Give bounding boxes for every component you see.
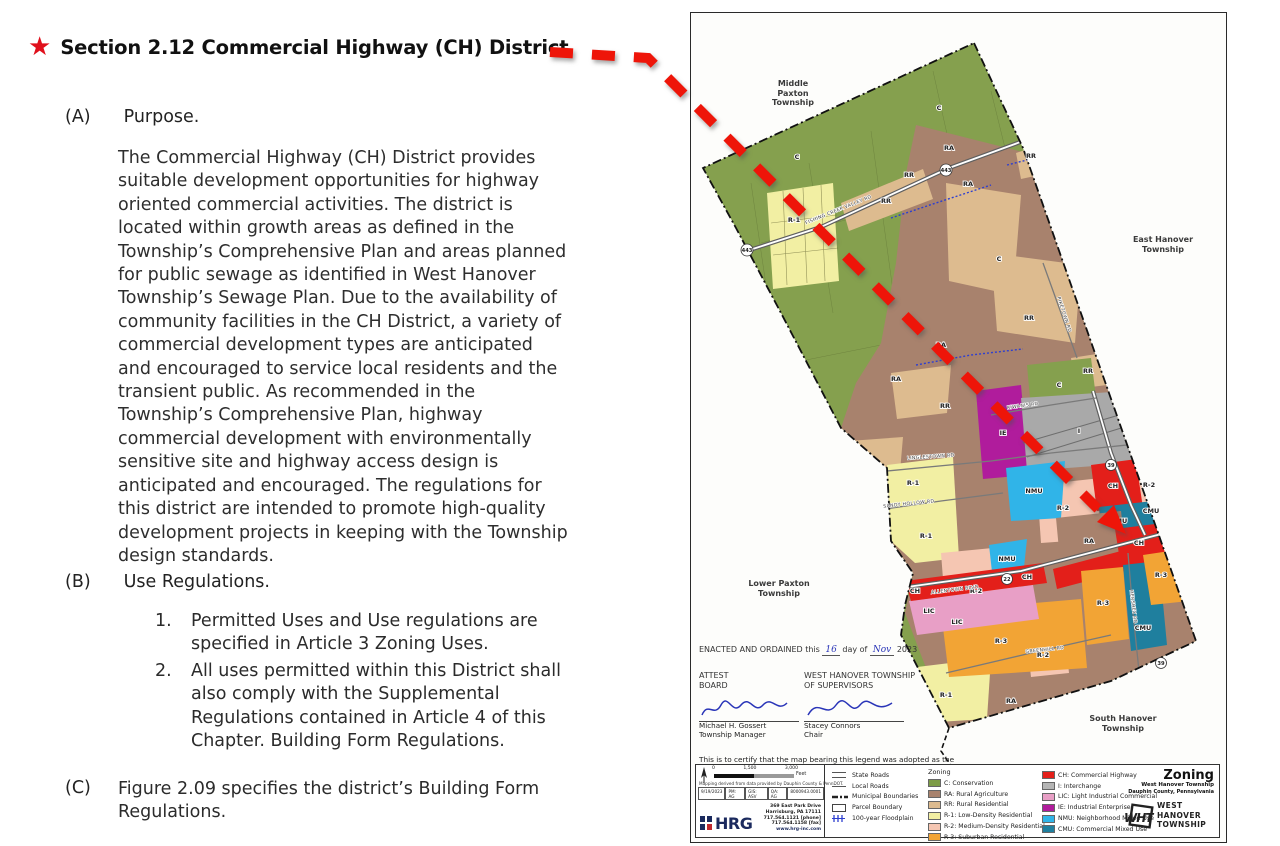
svg-text:I: I — [1078, 427, 1080, 435]
svg-text:RA: RA — [944, 144, 954, 152]
neighbor-label-middle-paxton: MiddlePaxtonTownship — [733, 79, 853, 108]
svg-text:R-2: R-2 — [1143, 481, 1155, 489]
map-title-block: Zoning West Hanover Township Dauphin Cou… — [1128, 769, 1214, 795]
revision-stamp-row: 9/19/2023PM: AG GIS: ASVQA: AG 8000943.0… — [698, 787, 824, 800]
legend-zoning-left: Zoning C: Conservation RA: Rural Agricul… — [928, 768, 1045, 843]
hrg-logo-icon — [700, 816, 713, 831]
svg-text:IE: IE — [1000, 429, 1007, 437]
list-item-number: 1. — [155, 610, 191, 657]
svg-text:LIC: LIC — [951, 618, 963, 626]
local-roads-symbol — [832, 786, 846, 787]
svg-text:RA: RA — [936, 341, 946, 349]
zone-swatch — [928, 812, 941, 820]
svg-text:C: C — [795, 153, 800, 161]
svg-text:RR: RR — [940, 402, 950, 410]
zone-swatch — [1042, 825, 1055, 833]
signature-squiggle — [804, 695, 896, 721]
svg-text:RR: RR — [1083, 367, 1093, 375]
attest-block: ATTESTBOARD — [699, 671, 729, 690]
svg-text:CH: CH — [1022, 573, 1032, 581]
svg-text:R-3: R-3 — [1097, 599, 1109, 607]
clause-c-text: Figure 2.09 specifies the district’s Bui… — [118, 778, 618, 825]
map-sheet: C C C C RA RA RA RA RA RA RR RR RR RR RR… — [690, 12, 1227, 843]
svg-text:CH: CH — [1108, 482, 1118, 490]
svg-text:RA: RA — [1006, 697, 1016, 705]
list-item: 2. All uses permitted within this Distri… — [155, 660, 591, 754]
zone-swatch — [1042, 782, 1055, 790]
clause-b: (B) Use Regulations. — [65, 572, 270, 592]
svg-text:RR: RR — [904, 171, 914, 179]
mapping-credit: Mapping derived from data provided by Da… — [699, 781, 843, 786]
svg-text:CMU: CMU — [1111, 517, 1128, 525]
svg-text:RA: RA — [1084, 537, 1094, 545]
clause-a: (A) Purpose. — [65, 107, 199, 127]
svg-text:R-3: R-3 — [995, 637, 1007, 645]
handwritten-day: 16 — [822, 645, 839, 656]
scale-ticks: 01,5003,000 — [712, 766, 798, 771]
svg-text:443: 443 — [742, 248, 753, 254]
svg-text:RA: RA — [891, 375, 901, 383]
list-item-text: Permitted Uses and Use regulations are s… — [191, 610, 591, 657]
svg-text:C: C — [997, 255, 1002, 263]
enacted-line: ENACTED AND ORDAINED this 16 day of Nov … — [699, 645, 917, 655]
wht-township-logo: WHT WEST HANOVER TOWNSHIP — [1124, 801, 1214, 835]
zone-swatch — [928, 823, 941, 831]
supervisors-block: WEST HANOVER TOWNSHIPOF SUPERVISORS — [804, 671, 915, 690]
svg-text:39: 39 — [1107, 463, 1115, 469]
svg-text:R-2: R-2 — [1057, 504, 1069, 512]
zone-swatch — [928, 790, 941, 798]
list-item: 1. Permitted Uses and Use regulations ar… — [155, 610, 591, 657]
clause-c: (C) — [65, 778, 118, 798]
parcel-boundary-symbol — [832, 804, 846, 812]
zone-swatch — [1042, 804, 1055, 812]
zone-swatch — [928, 779, 941, 787]
zone-swatch — [1042, 793, 1055, 801]
svg-text:C: C — [1057, 381, 1062, 389]
clause-a-title: Purpose. — [124, 107, 200, 127]
hrg-address: 369 East Park Drive Harrisburg, PA 17111… — [764, 804, 821, 833]
clause-a-label: (A) — [65, 107, 118, 127]
svg-text:CH: CH — [1134, 539, 1144, 547]
svg-text:CMU: CMU — [1135, 624, 1152, 632]
signature-squiggle — [699, 697, 791, 721]
svg-text:R-1: R-1 — [907, 479, 920, 487]
svg-text:C: C — [937, 104, 942, 112]
svg-text:NMU: NMU — [998, 555, 1015, 563]
section-heading: Section 2.12 Commercial Highway (CH) Dis… — [60, 36, 568, 59]
document-pane: ★ Section 2.12 Commercial Highway (CH) D… — [0, 0, 690, 846]
svg-text:LIC: LIC — [923, 607, 935, 615]
svg-text:CMU: CMU — [1143, 507, 1160, 515]
svg-text:RR: RR — [1024, 314, 1034, 322]
svg-text:R-1: R-1 — [940, 691, 953, 699]
scale-bar — [714, 774, 794, 778]
svg-text:RR: RR — [881, 197, 891, 205]
clause-c-label: (C) — [65, 778, 118, 798]
svg-text:39: 39 — [1157, 661, 1165, 667]
clause-b-label: (B) — [65, 572, 118, 592]
svg-text:R-1: R-1 — [788, 216, 801, 224]
svg-text:R-3: R-3 — [1155, 571, 1167, 579]
svg-text:RR: RR — [1026, 152, 1036, 160]
zone-swatch — [928, 801, 941, 809]
list-item-text: All uses permitted within this District … — [191, 660, 591, 754]
scale-unit: Feet — [796, 772, 806, 777]
neighbor-label-south-hanover: South HanoverTownship — [1063, 714, 1183, 733]
svg-text:CH: CH — [910, 587, 920, 595]
hrg-logo: HRG — [700, 814, 752, 833]
neighbor-label-lower-paxton: Lower PaxtonTownship — [719, 579, 839, 598]
zone-swatch — [928, 833, 941, 841]
handwritten-month: Nov — [870, 645, 894, 656]
purpose-paragraph: The Commercial Highway (CH) District pro… — [118, 147, 570, 568]
page-canvas: ★ Section 2.12 Commercial Highway (CH) D… — [0, 0, 1280, 846]
section-heading-row: ★ Section 2.12 Commercial Highway (CH) D… — [28, 34, 568, 60]
scale-and-credits: 01,5003,000 Feet Mapping derived from da… — [696, 765, 825, 837]
signature-chair: Stacey Connors Chair — [804, 695, 904, 739]
svg-text:NMU: NMU — [1025, 487, 1042, 495]
state-roads-symbol — [832, 772, 846, 778]
signature-manager: Michael H. Gossert Township Manager — [699, 697, 799, 739]
svg-text:443: 443 — [941, 168, 952, 174]
floodplain-symbol — [832, 815, 846, 822]
svg-text:R-1: R-1 — [920, 532, 933, 540]
star-icon: ★ — [28, 34, 51, 60]
neighbor-label-east-hanover: East HanoverTownship — [1103, 235, 1223, 254]
svg-text:22: 22 — [1003, 577, 1011, 583]
municipal-boundary-symbol — [832, 795, 848, 799]
legend-lines-column: State Roads Local Roads Municipal Bounda… — [832, 770, 918, 824]
svg-text:RA: RA — [963, 180, 973, 188]
zone-swatch — [1042, 815, 1055, 823]
list-item-number: 2. — [155, 660, 191, 754]
zone-swatch — [1042, 771, 1055, 779]
clause-b-title: Use Regulations. — [124, 572, 270, 592]
legend-box: 01,5003,000 Feet Mapping derived from da… — [695, 764, 1220, 838]
